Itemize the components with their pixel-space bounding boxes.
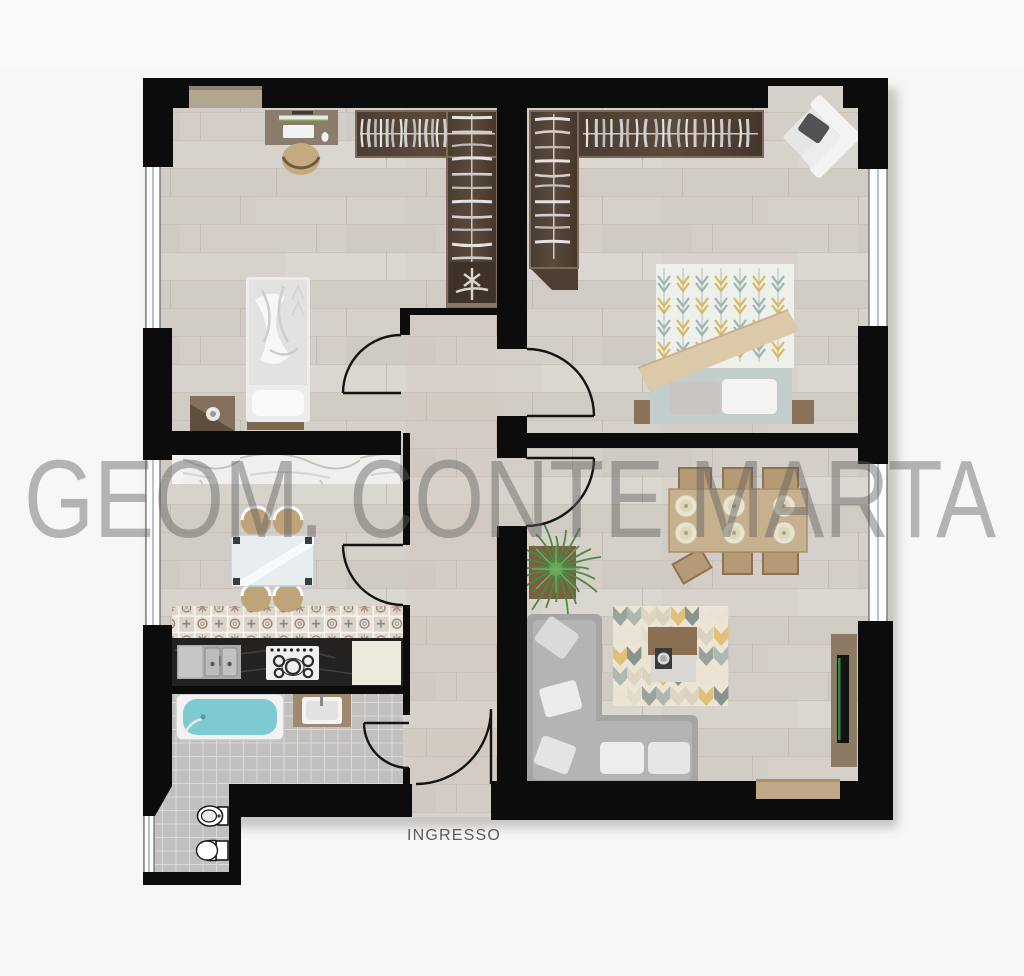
svg-text:INGRESSO: INGRESSO [407,827,501,844]
svg-text:GEOM. CONTE MARTA: GEOM. CONTE MARTA [24,438,997,561]
